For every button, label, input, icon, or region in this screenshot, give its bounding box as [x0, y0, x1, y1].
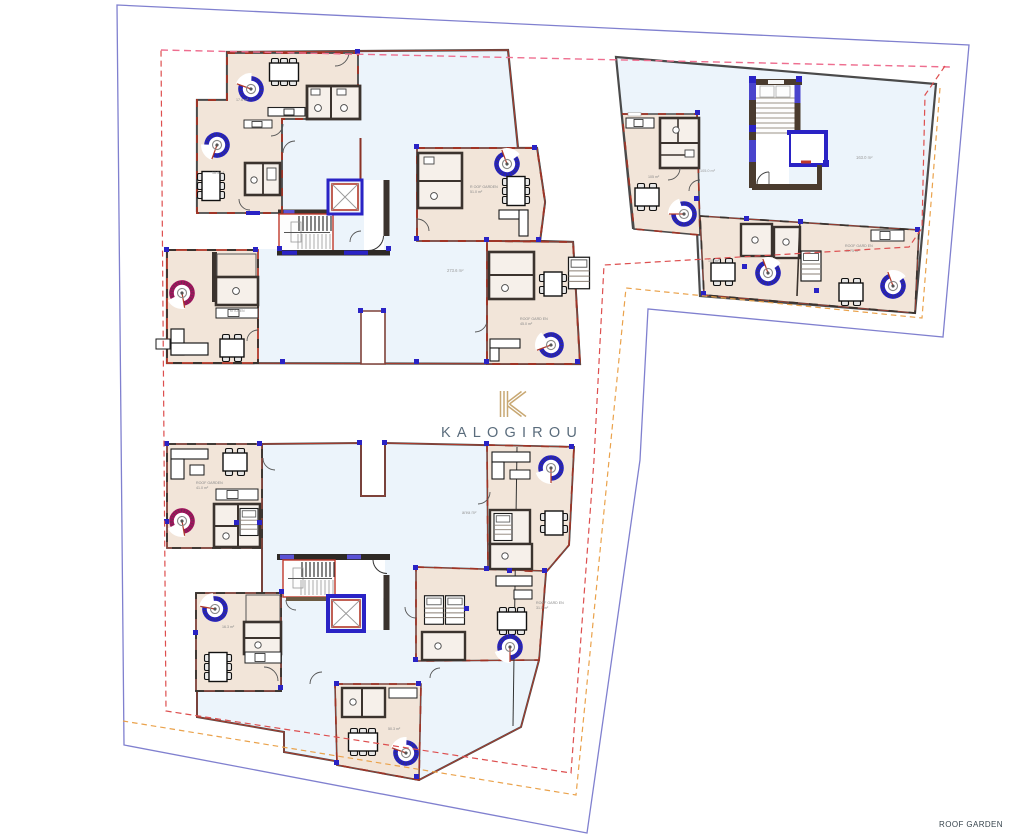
svg-text:16.3 m²: 16.3 m²: [212, 171, 225, 175]
svg-text:50.3 m²: 50.3 m²: [388, 727, 401, 731]
svg-text:ROOF GARDEN: ROOF GARDEN: [196, 481, 223, 485]
svg-text:105.0 m²: 105.0 m²: [700, 169, 716, 173]
svg-text:ROOF GARD EN: ROOF GARD EN: [536, 601, 564, 605]
svg-text:area m²: area m²: [462, 510, 477, 515]
svg-text:ROOF GARD EN: ROOF GARD EN: [520, 317, 548, 321]
svg-text:163.0 m²: 163.0 m²: [856, 155, 873, 160]
svg-text:45.0 m²: 45.0 m²: [520, 322, 533, 326]
svg-text:31.0 m²: 31.0 m²: [536, 606, 549, 610]
svg-text:ROOF GARDEN: ROOF GARDEN: [939, 820, 1003, 829]
svg-text:ROOF GARD EN: ROOF GARD EN: [845, 244, 873, 248]
svg-text:16.3 m²: 16.3 m²: [222, 625, 235, 629]
svg-text:41.0 m²: 41.0 m²: [196, 486, 209, 490]
svg-text:KALOGIROU: KALOGIROU: [441, 425, 583, 441]
svg-text:105 m²: 105 m²: [648, 175, 660, 179]
svg-text:R OOF GARDEN: R OOF GARDEN: [470, 185, 498, 189]
svg-text:51.0 m²: 51.0 m²: [470, 190, 483, 194]
svg-text:17.6 m²: 17.6 m²: [236, 98, 249, 102]
svg-text:KITCHEN: KITCHEN: [230, 309, 245, 313]
svg-text:273.6 m²: 273.6 m²: [447, 268, 464, 273]
svg-text:105 m²: 105 m²: [708, 259, 720, 263]
